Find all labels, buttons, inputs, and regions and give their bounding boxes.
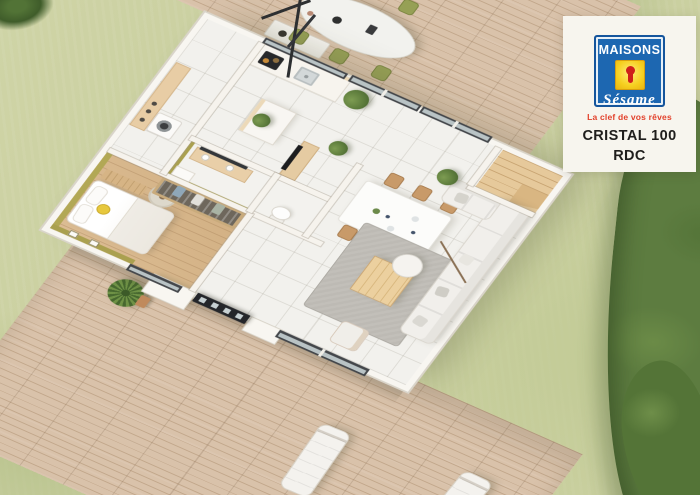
- brand-tagline: La clef de vos rêves: [563, 112, 696, 122]
- jar-icon: [145, 109, 152, 115]
- logo-wordmark-maisons: MAISONS: [596, 43, 663, 57]
- keyhole-icon: [615, 60, 645, 90]
- plate-icon: [410, 215, 420, 223]
- dining-chair: [411, 184, 434, 202]
- jar-icon: [139, 117, 146, 123]
- logo-wordmark-sesame: Sésame: [596, 92, 663, 109]
- sun-lounger: [279, 423, 351, 495]
- outdoor-chair: [327, 47, 351, 65]
- pillow: [72, 204, 94, 224]
- floor-label: RDC: [563, 148, 696, 164]
- bush-icon: [0, 0, 58, 36]
- outdoor-chair: [397, 0, 421, 16]
- bottle-icon: [410, 230, 416, 234]
- floor-plan-scene: MAISONS Sésame La clef de vos rêves CRIS…: [0, 0, 700, 495]
- brand-card: MAISONS Sésame La clef de vos rêves CRIS…: [563, 16, 696, 172]
- sun-lounger: [416, 471, 493, 495]
- vase-icon: [371, 207, 381, 215]
- maisons-sesame-logo: MAISONS Sésame: [594, 35, 665, 107]
- clothes: [171, 185, 186, 198]
- dining-chair: [383, 172, 406, 190]
- plant-icon: [325, 138, 351, 158]
- model-name: CRISTAL 100: [563, 128, 696, 144]
- pillow: [85, 186, 108, 206]
- yellow-cushion: [95, 203, 111, 215]
- bottle-icon: [385, 214, 391, 218]
- jar-icon: [151, 101, 158, 107]
- clothes: [211, 203, 226, 216]
- clothes: [190, 194, 205, 207]
- outdoor-chair: [369, 64, 393, 82]
